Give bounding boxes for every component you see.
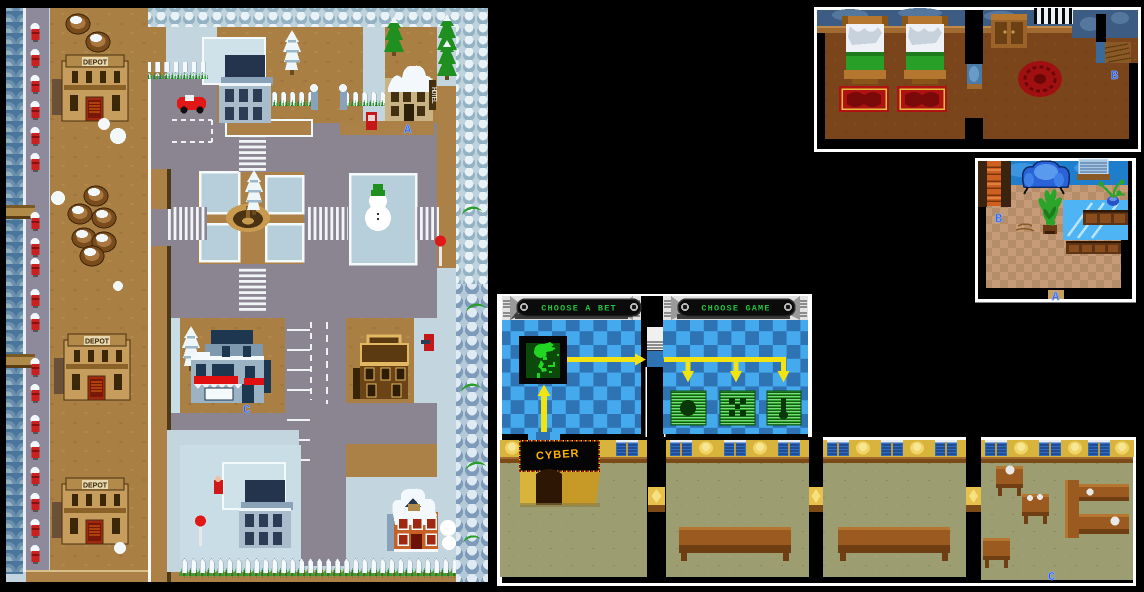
- svg-text:B: B: [1111, 69, 1118, 83]
- svg-text:B: B: [995, 212, 1002, 226]
- svg-text:HOTEL: HOTEL: [429, 87, 437, 104]
- svg-text:A: A: [404, 123, 412, 137]
- svg-text:CHOOSE GAME: CHOOSE GAME: [701, 304, 770, 314]
- svg-text:C: C: [1048, 570, 1055, 584]
- svg-text:CHOOSE A BET: CHOOSE A BET: [541, 304, 617, 314]
- svg-text:C: C: [243, 403, 250, 417]
- svg-text:A: A: [1052, 290, 1060, 304]
